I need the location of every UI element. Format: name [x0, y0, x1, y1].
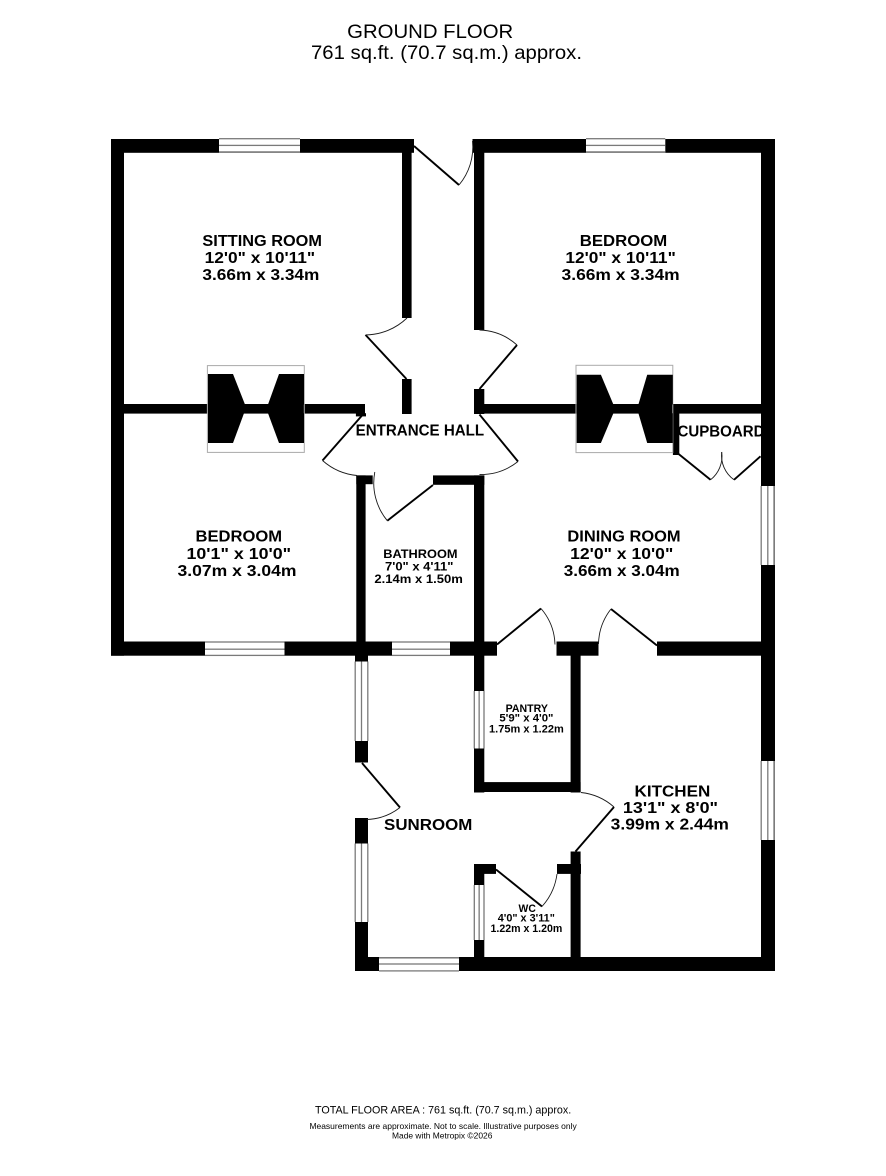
svg-text:BEDROOM: BEDROOM	[196, 529, 283, 546]
svg-text:12'0" x 10'0": 12'0" x 10'0"	[570, 546, 673, 563]
svg-text:1.22m x 1.20m: 1.22m x 1.20m	[491, 923, 563, 935]
svg-text:DINING ROOM: DINING ROOM	[567, 529, 680, 546]
svg-text:3.07m x 3.04m: 3.07m x 3.04m	[178, 563, 297, 580]
svg-text:CUPBOARD: CUPBOARD	[677, 423, 764, 440]
svg-text:KITCHEN: KITCHEN	[635, 784, 711, 801]
svg-text:10'1" x 10'0": 10'1" x 10'0"	[187, 546, 292, 563]
svg-text:12'0" x 10'11": 12'0" x 10'11"	[205, 250, 316, 267]
svg-text:BEDROOM: BEDROOM	[580, 233, 667, 250]
svg-text:SUNROOM: SUNROOM	[384, 817, 472, 834]
svg-text:3.66m x 3.34m: 3.66m x 3.34m	[202, 267, 319, 284]
svg-text:Measurements are approximate.: Measurements are approximate. Not to sca…	[309, 1121, 577, 1131]
svg-text:3.66m x 3.34m: 3.66m x 3.34m	[562, 267, 680, 284]
svg-text:SITTING ROOM: SITTING ROOM	[202, 233, 322, 250]
svg-text:12'0" x 10'11": 12'0" x 10'11"	[565, 250, 675, 267]
svg-text:2.14m x 1.50m: 2.14m x 1.50m	[374, 572, 463, 586]
svg-text:GROUND FLOOR: GROUND FLOOR	[347, 21, 513, 43]
svg-text:TOTAL FLOOR AREA : 761 sq.ft.: TOTAL FLOOR AREA : 761 sq.ft. (70.7 sq.m…	[315, 1105, 571, 1117]
svg-text:3.99m x 2.44m: 3.99m x 2.44m	[611, 817, 729, 834]
svg-text:Made with Metropix ©2026: Made with Metropix ©2026	[392, 1130, 493, 1140]
svg-text:3.66m x 3.04m: 3.66m x 3.04m	[564, 563, 680, 580]
svg-text:1.75m x 1.22m: 1.75m x 1.22m	[489, 723, 564, 735]
svg-text:ENTRANCE HALL: ENTRANCE HALL	[356, 423, 485, 440]
svg-text:761 sq.ft. (70.7 sq.m.) approx: 761 sq.ft. (70.7 sq.m.) approx.	[311, 42, 582, 64]
svg-text:13'1" x 8'0": 13'1" x 8'0"	[623, 800, 718, 817]
